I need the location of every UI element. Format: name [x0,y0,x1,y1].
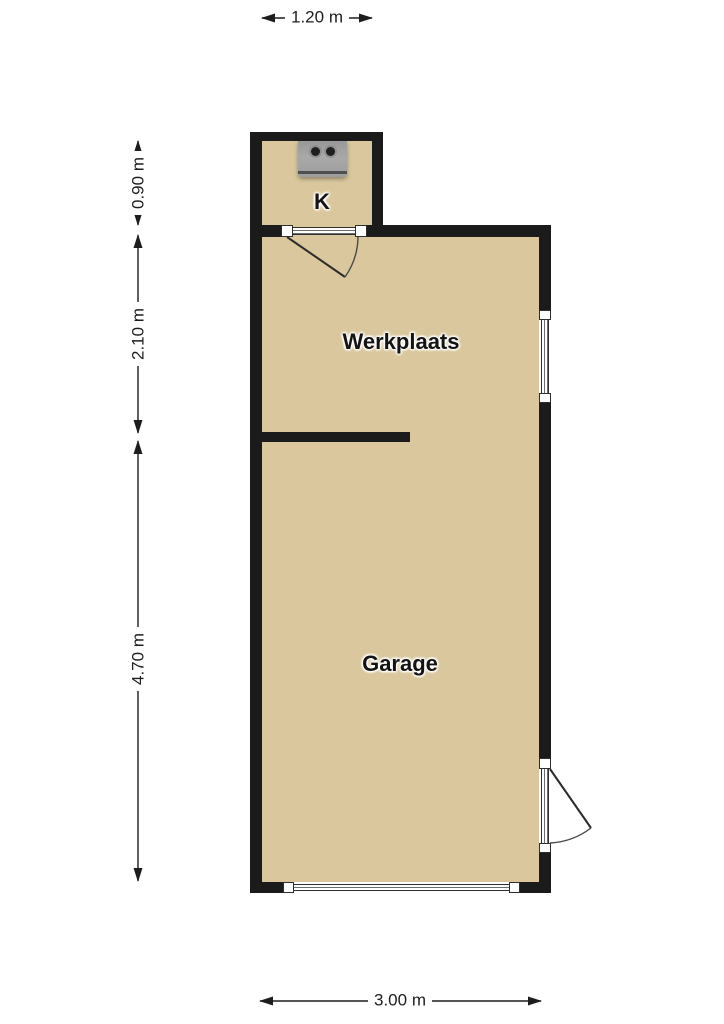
wall-bottom-right [520,882,551,893]
k-door-leaf-closed [293,227,355,235]
garage-side-door-panel [550,769,591,828]
wall-right-upper [539,225,551,310]
wall-left [250,132,262,893]
stove-burner-icon [326,147,335,156]
garage-side-door-jamb-bottom [539,843,551,853]
wall-k-top [250,132,383,141]
werkplaats-window-glazing [541,320,549,393]
stove-burner-icon [311,147,320,156]
wall-partition-werkplaats-garage [250,432,410,442]
wall-top-main [383,225,551,237]
k-door-jamb-left [281,225,293,237]
wall-right-middle [539,403,551,758]
garage-side-door-swing-arc [550,828,591,843]
dimension-label-garage-height: 4.70 m [129,627,150,691]
dimension-label-k-height: 0.90 m [129,151,150,215]
floorplan-canvas: K Werkplaats Garage 1.20 m 0.90 m 2.10 m… [0,0,724,1024]
k-door-jamb-right [355,225,367,237]
werkplaats-window-jamb-bottom [539,393,551,403]
room-label-k: K [314,189,330,215]
wall-k-right [372,132,383,237]
room-label-werkplaats: Werkplaats [343,329,460,355]
stove-front-edge [298,171,347,174]
wall-k-door-stub-right [367,225,372,237]
garage-side-door-threshold [541,769,549,843]
wall-bottom-left [250,882,283,893]
dimension-label-top-width: 1.20 m [285,8,349,29]
garage-main-door-jamb-left [283,882,294,893]
garage-main-door-jamb-right [509,882,520,893]
werkplaats-window-jamb-top [539,310,551,320]
garage-side-door-jamb-top [539,758,551,769]
dimension-label-bottom-width: 3.00 m [368,991,432,1012]
room-label-garage: Garage [362,651,438,677]
stove-icon [298,141,347,177]
dimension-label-werkplaats-height: 2.10 m [129,302,150,366]
wall-k-door-stub-left [262,225,281,237]
garage-main-door-panel [294,884,509,891]
